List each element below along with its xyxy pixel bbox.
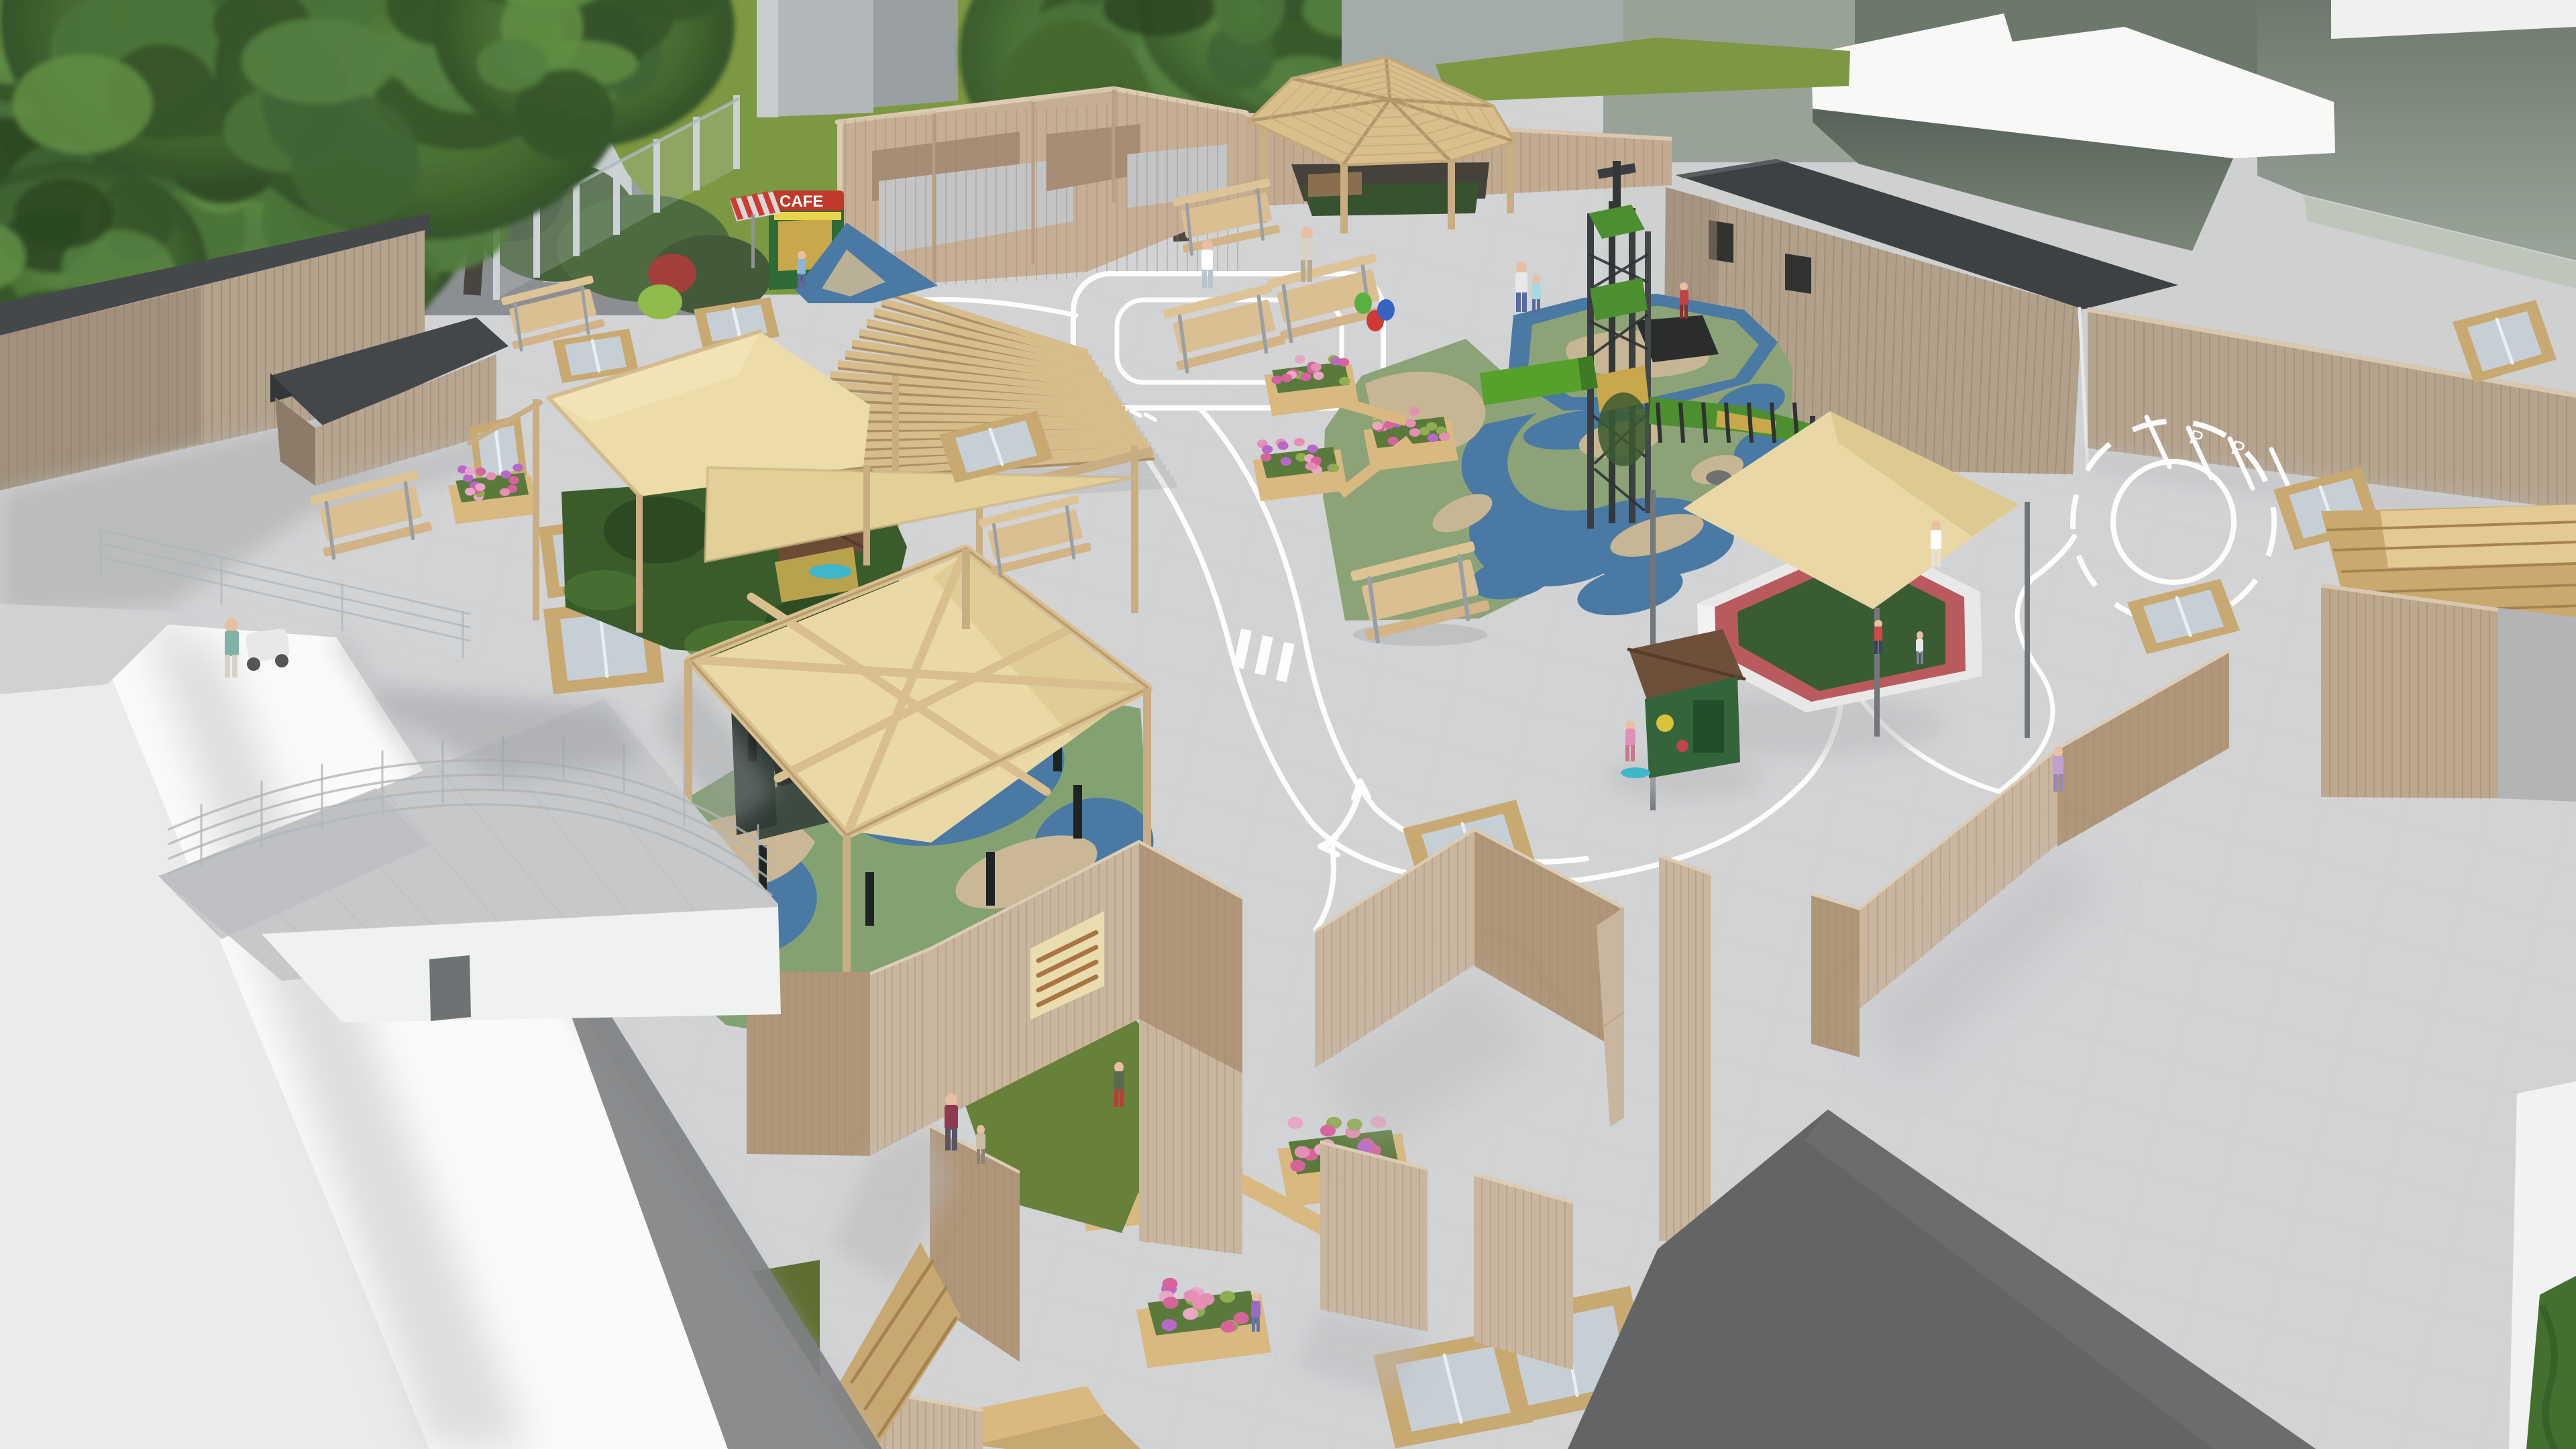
svg-text:CAFE: CAFE	[780, 193, 823, 211]
